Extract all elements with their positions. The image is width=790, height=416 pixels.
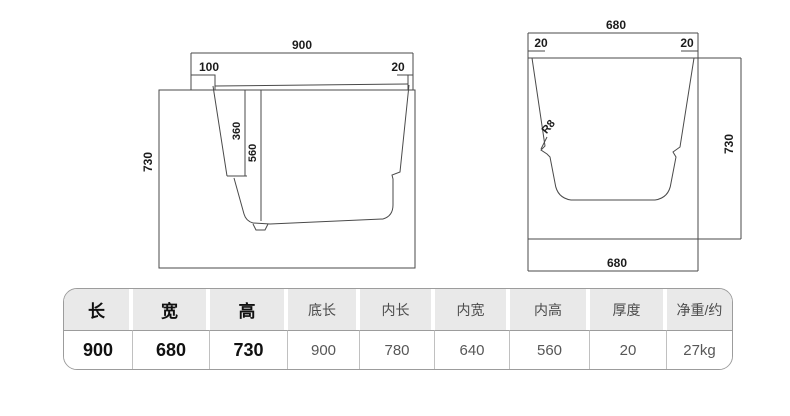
side-height-label: 730: [141, 152, 155, 172]
spec-header-cell: 高: [210, 289, 288, 330]
side-overall-length-label: 900: [292, 38, 312, 52]
end-outer-box: [528, 58, 698, 239]
side-drain: [253, 224, 268, 230]
end-height-label: 730: [722, 134, 736, 154]
side-left-lip: [191, 75, 215, 90]
spec-header-cell: 厚度: [590, 289, 667, 330]
end-inner-profile: [532, 58, 694, 200]
end-wall-right-label: 20: [680, 36, 694, 50]
spec-header-cell: 内高: [510, 289, 590, 330]
end-overall-width-bottom-label: 680: [607, 256, 627, 270]
spec-value-cell: 900: [288, 330, 360, 369]
end-wall-left-label: 20: [534, 36, 548, 50]
spec-value-cell: 560: [510, 330, 590, 369]
side-seat-depth-label: 360: [231, 122, 243, 140]
end-overall-width-top-label: 680: [606, 18, 626, 32]
side-rim-line: [215, 84, 408, 86]
side-right-wall: [383, 85, 409, 219]
spec-header-cell: 宽: [133, 289, 210, 330]
side-deck-left-label: 100: [199, 60, 219, 74]
end-corner-radius-label: R8: [540, 118, 558, 136]
side-dim-900: [191, 53, 413, 75]
side-view-diagram: 900 100 20 730 360 560: [141, 38, 415, 268]
spec-value-cell: 27kg: [667, 330, 732, 369]
side-deck-right-label: 20: [391, 60, 405, 74]
bathtub-spec-sheet: 900 100 20 730 360 560 680 20: [0, 0, 790, 416]
end-view-diagram: 680 20 20 R8 730 680: [528, 18, 741, 271]
spec-table: 长 宽 高 底长 内长 内宽 内高 厚度 净重/约 900 680 730 90…: [63, 288, 733, 370]
spec-value-cell: 680: [133, 330, 210, 369]
side-inner-depth-label: 560: [247, 144, 259, 162]
end-dim-680-top-lines: [528, 33, 698, 58]
spec-value-cell: 900: [64, 330, 133, 369]
spec-value-cell: 20: [590, 330, 667, 369]
spec-value-cell: 780: [360, 330, 435, 369]
spec-header-cell: 内宽: [435, 289, 510, 330]
spec-header-cell: 净重/约: [667, 289, 732, 330]
spec-header-cell: 底长: [288, 289, 360, 330]
spec-header-cell: 长: [64, 289, 133, 330]
side-bottom-line: [253, 219, 383, 224]
side-outer-box: [159, 90, 415, 268]
side-lower-left-wall: [234, 178, 253, 223]
spec-header-cell: 内长: [360, 289, 435, 330]
dimension-drawings: 900 100 20 730 360 560 680 20: [0, 0, 790, 285]
spec-value-cell: 640: [435, 330, 510, 369]
spec-value-cell: 730: [210, 330, 288, 369]
